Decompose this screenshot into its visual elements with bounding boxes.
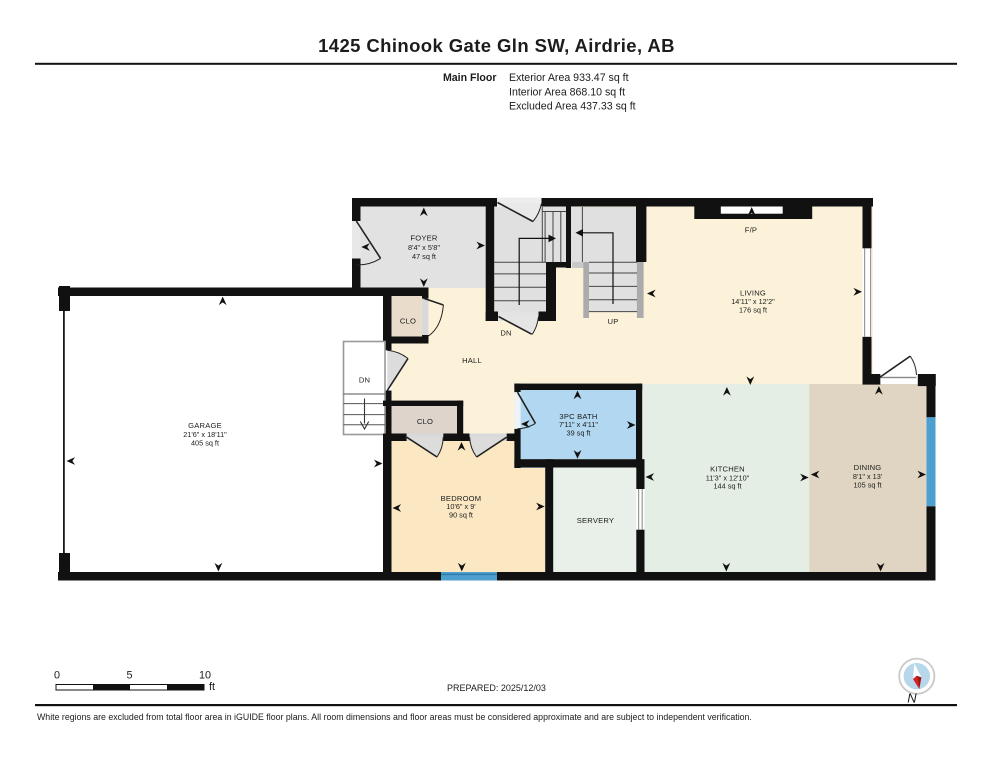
svg-text:CLO: CLO xyxy=(400,317,416,326)
svg-text:GARAGE: GARAGE xyxy=(188,421,222,430)
svg-text:DN: DN xyxy=(500,329,511,338)
svg-text:UP: UP xyxy=(608,317,619,326)
svg-text:5: 5 xyxy=(126,670,132,682)
svg-text:F/P: F/P xyxy=(745,226,757,235)
svg-text:Exterior Area 933.47 sq ft: Exterior Area 933.47 sq ft xyxy=(509,72,629,84)
svg-text:105 sq ft: 105 sq ft xyxy=(854,481,882,490)
svg-text:39 sq ft: 39 sq ft xyxy=(567,428,591,437)
svg-text:90 sq ft: 90 sq ft xyxy=(449,510,473,519)
svg-text:CLO: CLO xyxy=(417,417,433,426)
svg-text:10: 10 xyxy=(199,670,211,682)
svg-text:SERVERY: SERVERY xyxy=(577,516,614,525)
svg-text:0: 0 xyxy=(54,670,60,682)
svg-text:DINING: DINING xyxy=(854,463,882,472)
svg-text:HALL: HALL xyxy=(462,356,482,365)
svg-text:KITCHEN: KITCHEN xyxy=(710,465,745,474)
svg-text:1425 Chinook Gate Gln SW, Aird: 1425 Chinook Gate Gln SW, Airdrie, AB xyxy=(318,35,675,56)
svg-text:Interior Area 868.10 sq ft: Interior Area 868.10 sq ft xyxy=(509,86,625,98)
svg-text:ft: ft xyxy=(209,681,215,693)
svg-text:DN: DN xyxy=(359,376,370,385)
svg-text:N: N xyxy=(907,691,917,706)
svg-text:Excluded Area 437.33 sq ft: Excluded Area 437.33 sq ft xyxy=(509,101,636,113)
svg-text:176 sq ft: 176 sq ft xyxy=(739,305,767,314)
svg-text:Main Floor: Main Floor xyxy=(443,72,497,84)
svg-text:White regions are excluded fro: White regions are excluded from total fl… xyxy=(37,712,752,722)
svg-text:47 sq ft: 47 sq ft xyxy=(412,252,436,261)
svg-text:144 sq ft: 144 sq ft xyxy=(714,482,742,491)
svg-text:8'4" x 5'8": 8'4" x 5'8" xyxy=(408,243,440,252)
svg-text:PREPARED: 2025/12/03: PREPARED: 2025/12/03 xyxy=(447,683,546,693)
svg-text:FOYER: FOYER xyxy=(410,234,437,243)
svg-text:405 sq ft: 405 sq ft xyxy=(191,439,219,448)
